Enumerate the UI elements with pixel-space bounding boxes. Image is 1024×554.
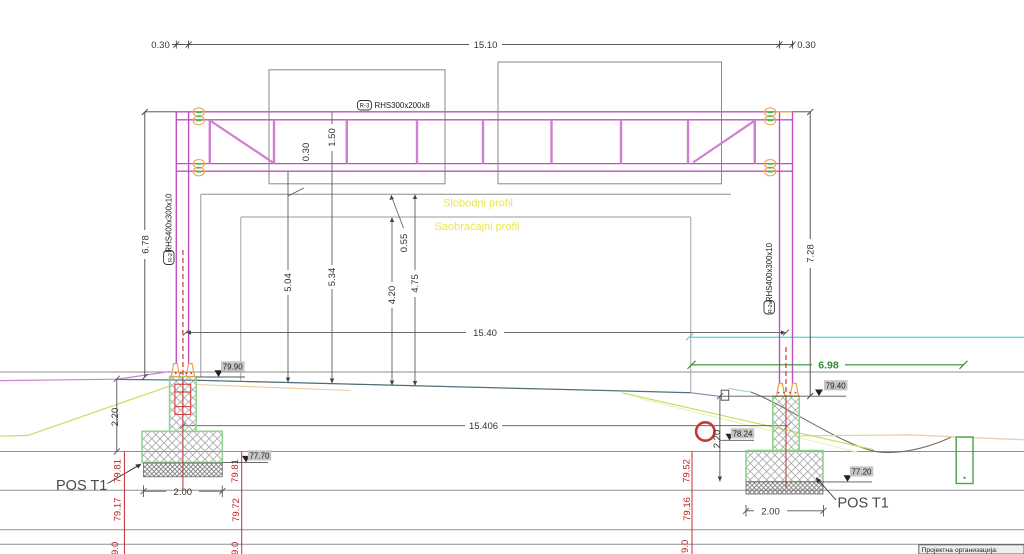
svg-text:4.20: 4.20: [387, 286, 398, 305]
svg-text:78.24: 78.24: [732, 429, 753, 438]
svg-text:2.00: 2.00: [761, 506, 780, 517]
svg-text:0.30: 0.30: [797, 40, 816, 51]
svg-text:RHS300x200x8: RHS300x200x8: [375, 101, 431, 110]
svg-text:POS T1: POS T1: [56, 478, 107, 494]
svg-text:15.406: 15.406: [469, 421, 498, 432]
svg-text:0.30: 0.30: [151, 40, 170, 51]
svg-text:79.81: 79.81: [230, 459, 241, 483]
svg-text:77.20: 77.20: [851, 467, 872, 476]
svg-text:79.40: 79.40: [826, 381, 847, 390]
svg-text:15.10: 15.10: [474, 40, 498, 51]
svg-text:6.78: 6.78: [140, 235, 151, 254]
svg-text:2.00: 2.00: [174, 487, 193, 498]
svg-text:79.0: 79.0: [230, 542, 241, 554]
svg-text:79.81: 79.81: [112, 459, 123, 483]
svg-text:R-2a: R-2a: [768, 300, 774, 313]
svg-text:0.55: 0.55: [399, 234, 410, 253]
svg-text:0.30: 0.30: [301, 143, 312, 162]
svg-text:2.20: 2.20: [110, 408, 121, 427]
svg-text:R-3: R-3: [360, 104, 370, 110]
svg-text:79.0: 79.0: [110, 542, 121, 554]
svg-text:2.20: 2.20: [712, 430, 723, 449]
svg-text:77.70: 77.70: [249, 451, 270, 460]
svg-text:1.50: 1.50: [327, 128, 338, 147]
svg-text:79.72: 79.72: [231, 498, 242, 522]
svg-text:79.90: 79.90: [223, 362, 244, 371]
svg-text:RHS400x300x10: RHS400x300x10: [165, 193, 174, 253]
svg-text:5.34: 5.34: [327, 268, 338, 287]
svg-text:4.75: 4.75: [410, 274, 421, 293]
svg-text:POS T1: POS T1: [838, 496, 889, 512]
svg-text:R-2: R-2: [168, 253, 174, 262]
svg-text:Saobraćajni profil: Saobraćajni profil: [435, 221, 520, 233]
svg-text:Slobodni profil: Slobodni profil: [443, 198, 513, 210]
svg-text:79.17: 79.17: [112, 498, 123, 522]
svg-text:79.0: 79.0: [680, 540, 691, 554]
svg-text:15.40: 15.40: [473, 328, 497, 339]
svg-text:Пројектна организација:: Пројектна организација:: [922, 547, 998, 554]
svg-text:7.28: 7.28: [806, 244, 817, 263]
svg-text:6.98: 6.98: [818, 359, 839, 371]
svg-text:79.52: 79.52: [681, 459, 692, 483]
svg-text:5.04: 5.04: [283, 273, 294, 292]
svg-text:RHS400x300x10: RHS400x300x10: [765, 242, 774, 302]
svg-text:79.16: 79.16: [682, 497, 693, 521]
